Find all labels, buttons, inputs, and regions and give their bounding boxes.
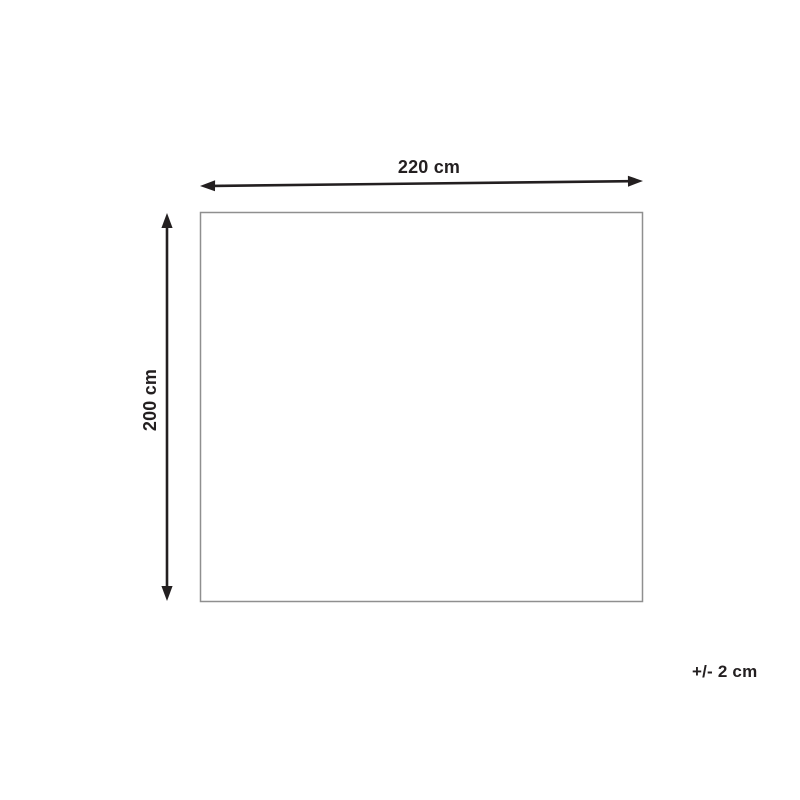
dimension-diagram: 220 cm 200 cm +/- 2 cm	[0, 0, 800, 800]
height-arrow-bottom-head-icon	[161, 586, 172, 601]
product-outline-rectangle	[201, 213, 643, 602]
width-dimension-label: 220 cm	[369, 156, 489, 178]
width-arrow-left-head-icon	[200, 180, 215, 191]
width-arrow-right-head-icon	[628, 176, 643, 187]
width-dimension-arrow	[200, 176, 643, 192]
height-arrow-top-head-icon	[161, 213, 172, 228]
tolerance-label: +/- 2 cm	[692, 661, 800, 683]
height-dimension-label: 200 cm	[139, 340, 161, 460]
height-dimension-arrow	[161, 213, 172, 601]
diagram-drawing	[0, 0, 800, 800]
width-arrow-line	[213, 181, 630, 186]
